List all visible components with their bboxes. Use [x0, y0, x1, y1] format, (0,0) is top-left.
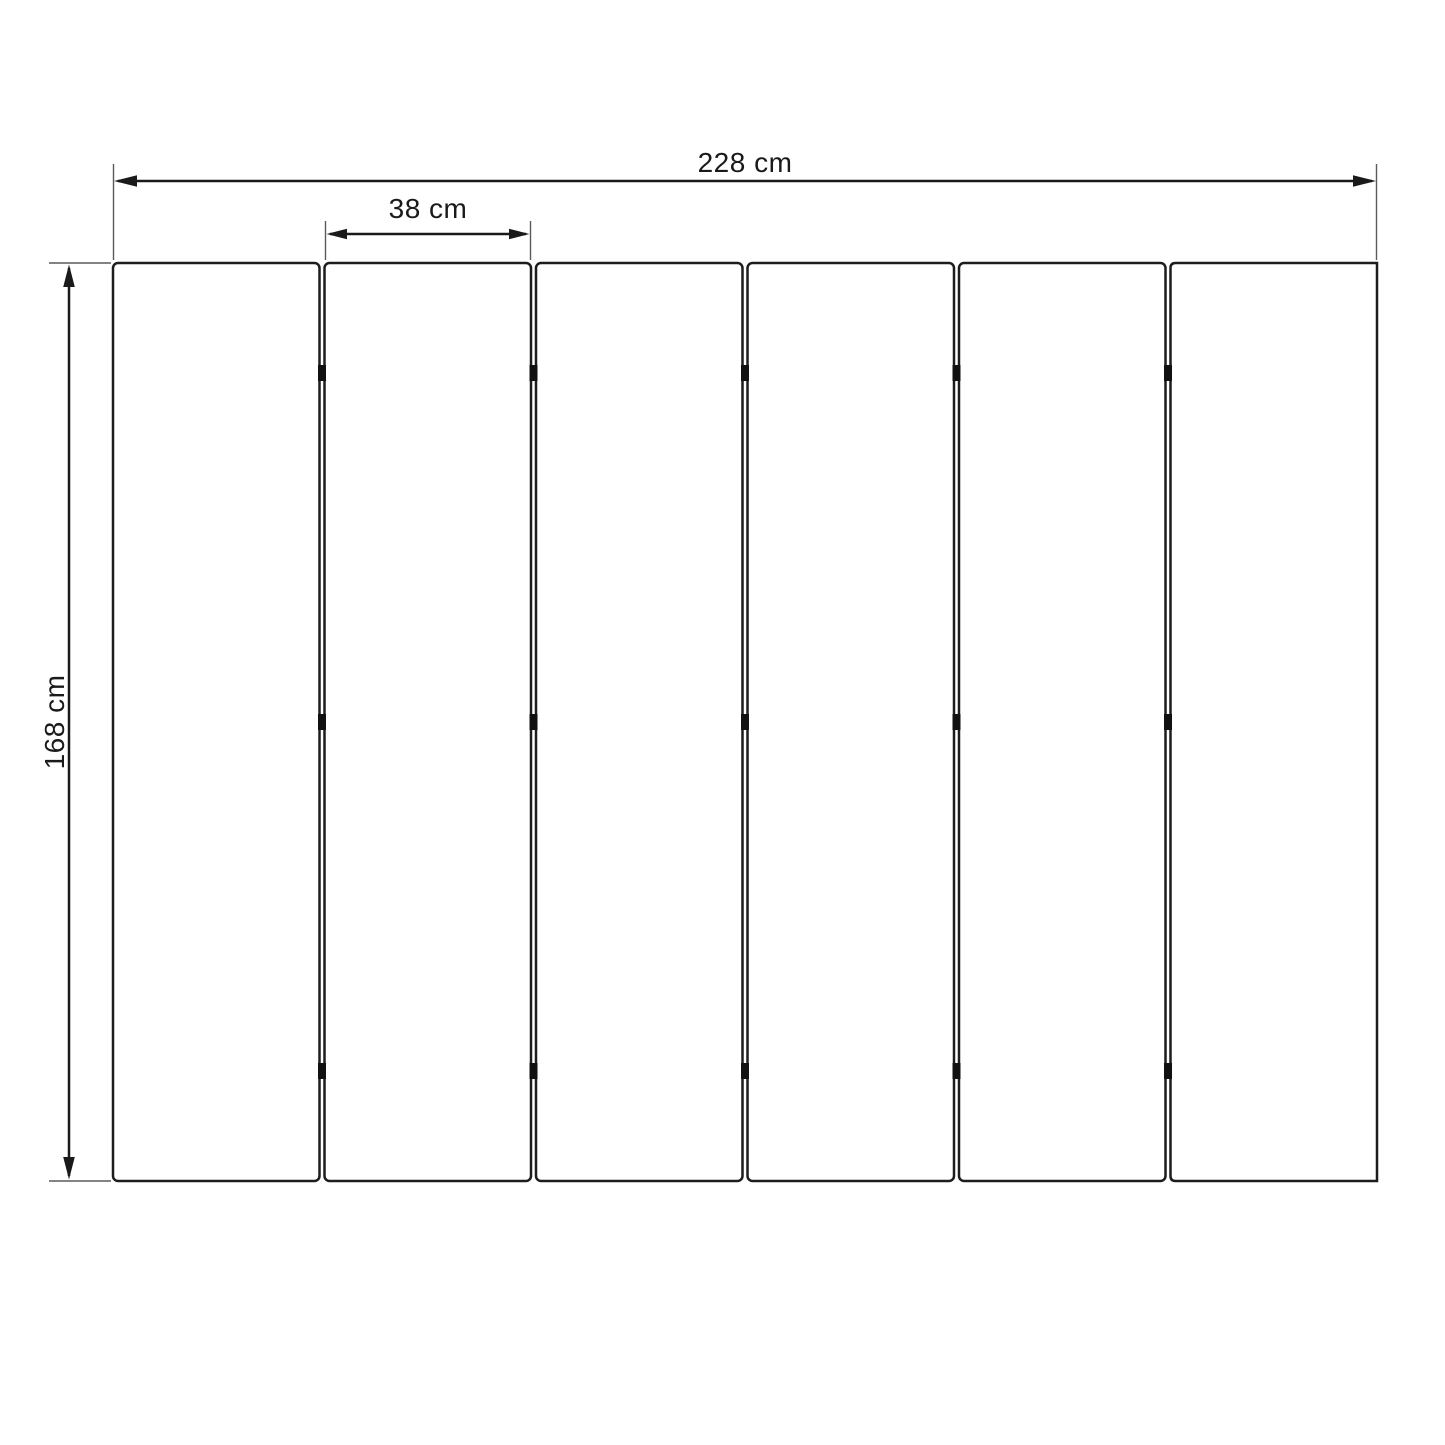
diagram-svg: 228 cm 38 cm 168 cm	[0, 0, 1445, 1445]
arrowhead-down-icon	[63, 1157, 75, 1180]
hinge-mark	[318, 714, 326, 730]
arrowhead-right-icon	[509, 229, 530, 239]
dim-total-width: 228 cm	[114, 147, 1377, 260]
hinge-mark	[318, 1063, 326, 1079]
hinge-mark	[1164, 365, 1172, 381]
hinge-mark	[530, 714, 538, 730]
dim-label-height: 168 cm	[39, 675, 70, 770]
hinge-mark	[953, 365, 961, 381]
hinge-mark	[530, 365, 538, 381]
panel-1	[113, 263, 320, 1181]
dim-label-total-width: 228 cm	[698, 147, 793, 178]
dim-height: 168 cm	[39, 263, 111, 1181]
hinge-mark	[530, 1063, 538, 1079]
hinge-mark	[741, 1063, 749, 1079]
hinge-mark	[318, 365, 326, 381]
panel-4	[748, 263, 955, 1181]
dim-panel-width: 38 cm	[326, 193, 531, 260]
panel-2	[325, 263, 532, 1181]
panel-6	[1171, 263, 1378, 1181]
arrowhead-left-icon	[327, 229, 348, 239]
arrowhead-right-icon	[1353, 175, 1376, 187]
panel-3	[536, 263, 743, 1181]
hinge-mark	[1164, 714, 1172, 730]
dimension-diagram: 228 cm 38 cm 168 cm	[0, 0, 1445, 1445]
hinge-mark	[741, 714, 749, 730]
hinge-mark	[953, 1063, 961, 1079]
hinge-mark	[1164, 1063, 1172, 1079]
hinge-mark	[741, 365, 749, 381]
hinge-mark	[953, 714, 961, 730]
panel-5	[959, 263, 1166, 1181]
arrowhead-up-icon	[63, 265, 75, 288]
arrowhead-left-icon	[114, 175, 137, 187]
dim-label-panel-width: 38 cm	[389, 193, 468, 224]
